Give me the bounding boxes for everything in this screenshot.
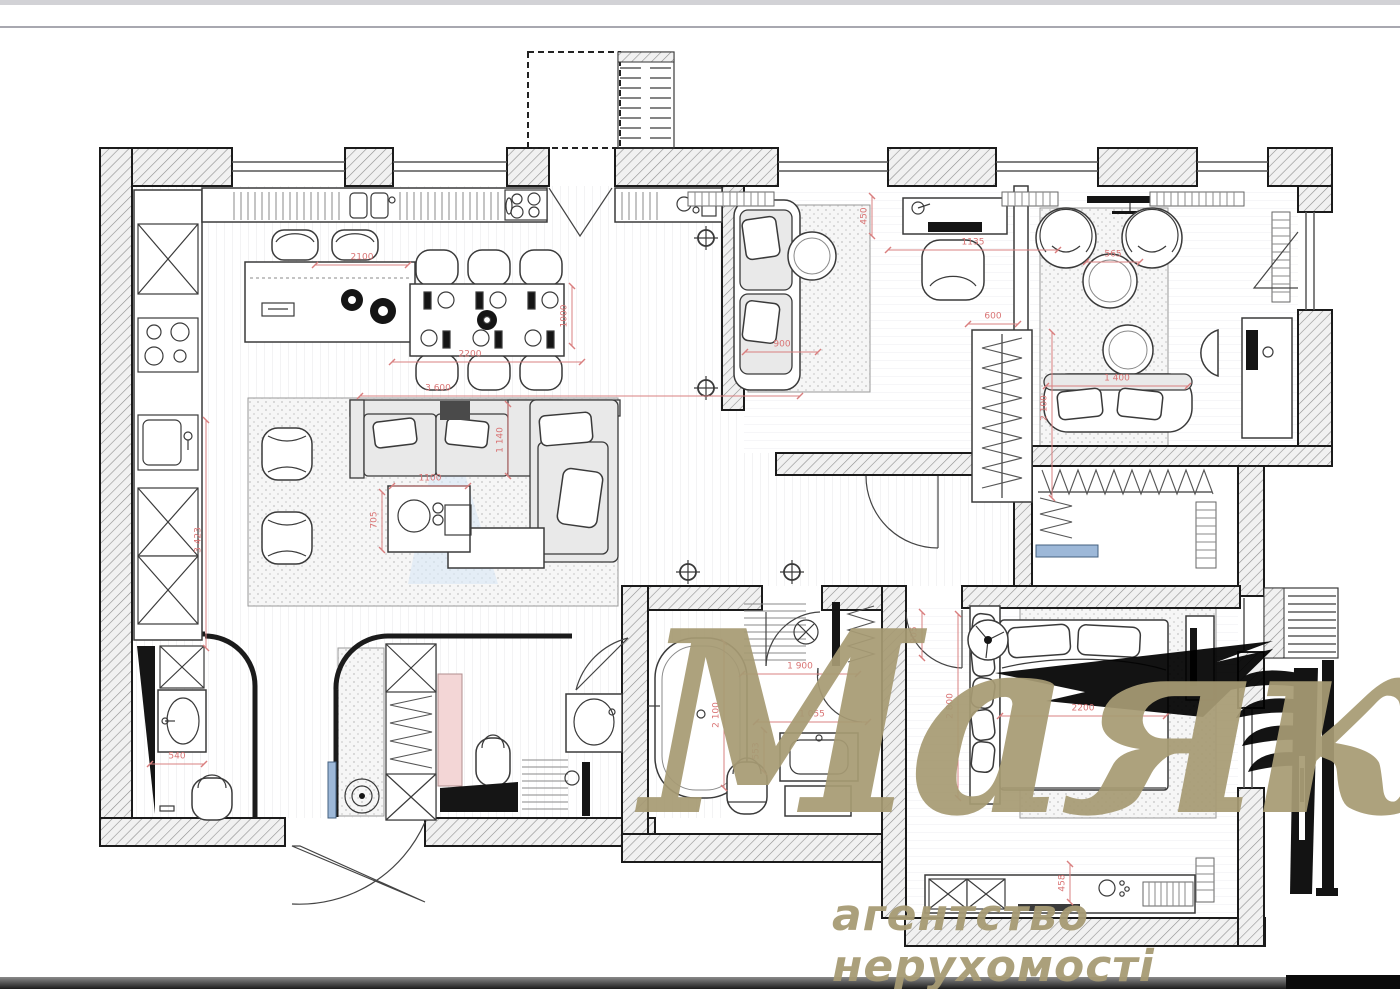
bedroom-dresser [925, 875, 1195, 913]
dressing-rug [338, 648, 384, 816]
counter-sink-icon [350, 193, 395, 218]
hob-icon [505, 190, 547, 220]
pink-cabinet [438, 674, 462, 786]
towel-rail [848, 606, 874, 662]
french-balcony [1264, 588, 1338, 658]
walk-in-closet [1036, 470, 1216, 568]
wc-cabinet [160, 646, 204, 688]
ceiling-fan-icon [968, 620, 1008, 660]
toilet-2 [476, 735, 510, 786]
desk-chair [922, 240, 984, 300]
glass-door [328, 762, 336, 818]
tv-icon [440, 401, 470, 420]
vanity-sink [780, 733, 858, 816]
sink-2 [566, 694, 622, 752]
floor-plan-drawing [0, 0, 1400, 989]
closet-shelves [1196, 502, 1216, 568]
side-table [788, 232, 836, 280]
shower [744, 602, 862, 722]
dining-area [410, 250, 564, 390]
radiator-icon [688, 192, 774, 206]
staircase-icon [618, 52, 674, 148]
wardrobe-divider [972, 330, 1032, 502]
loveseat [1044, 374, 1192, 432]
kitchen-island [245, 262, 415, 342]
ottoman [1103, 325, 1153, 375]
closet-bench [1036, 545, 1098, 557]
screenshot-stage: 2100220010003 60011007051 1403 423900450… [0, 0, 1400, 989]
wc-sink [158, 690, 206, 752]
office-sofa [734, 200, 800, 390]
bedroom-shelf [1196, 858, 1214, 902]
office-desk [903, 198, 1007, 234]
dressing-cabinets [386, 644, 436, 820]
toilet [727, 758, 767, 814]
